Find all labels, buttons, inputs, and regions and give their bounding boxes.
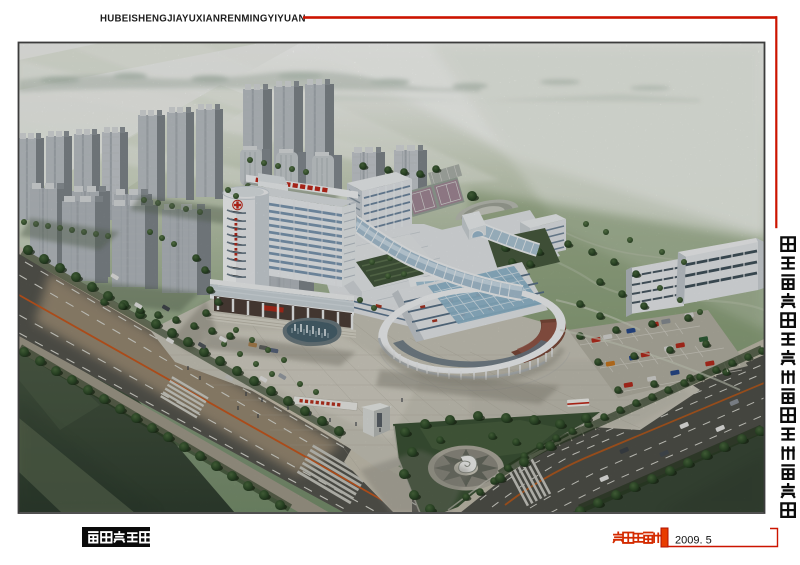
- svg-text:2009. 5: 2009. 5: [675, 535, 712, 547]
- svg-text:HUBEISHENGJIAYUXIANRENMINGYIYU: HUBEISHENGJIAYUXIANRENMINGYIYUAN: [100, 14, 306, 25]
